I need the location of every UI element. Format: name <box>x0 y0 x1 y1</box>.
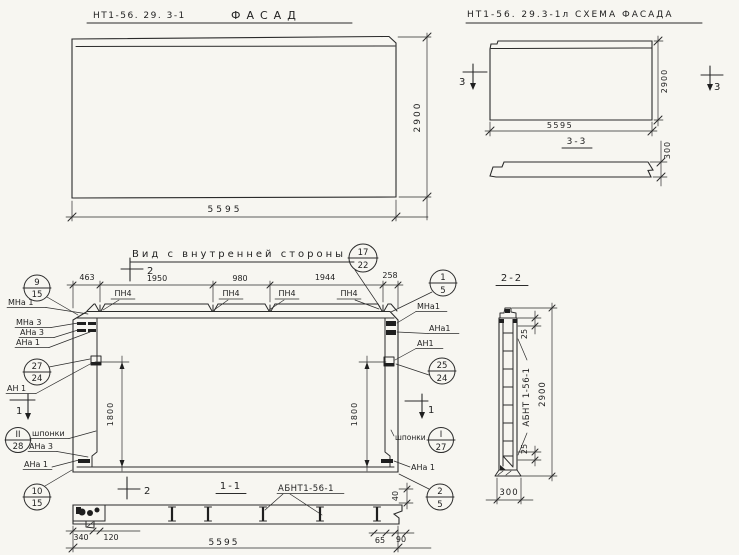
label-ana3-left-bottom: АНа 3 <box>28 442 88 457</box>
embedded-plate-right-bottom <box>381 459 393 463</box>
label-mna1-left: МНа 1 <box>7 298 88 314</box>
section-2-2-dim-25-top: 25 <box>518 311 541 339</box>
facade-code: НТ1-56. 29. 3-1 <box>93 11 186 21</box>
callout-right-bottom-den: 5 <box>437 500 442 510</box>
section-2-2: 2-2 <box>486 273 557 504</box>
callout-right-top-num: 1 <box>440 273 445 283</box>
dim-1944: 1944 <box>315 273 335 282</box>
section-2-2-part-label: АБНТ 1-56-1 <box>518 339 532 455</box>
dim-2900-section-text: 2900 <box>538 381 548 407</box>
label-an1-right-text: АН1 <box>417 339 434 348</box>
label-an1-right: АН1 <box>395 339 443 360</box>
callout-right-top-den: 5 <box>440 286 445 296</box>
part-label-abnt: АБНТ1-56-1 <box>265 484 344 515</box>
facade-title: НТ1-56. 29. 3-1 ФАСАД <box>87 9 352 23</box>
section-2-2-dim-25-bottom: 25 <box>518 444 541 466</box>
key-plate-left <box>91 356 101 365</box>
schema-section-title-text: 3-3 <box>567 137 588 147</box>
section-1-1: 2 1-1 АБНТ1-56-1 <box>66 477 431 552</box>
schema-section-profile <box>490 162 653 177</box>
label-ana1-left-bottom-text: АНа 1 <box>24 460 48 469</box>
label-ana3-left-bottom-text: АНа 3 <box>29 442 53 451</box>
section-1-1-title-text: 1-1 <box>220 481 242 492</box>
facade-panel-outline <box>72 37 396 199</box>
section-1-1-dims-left: 340 120 <box>66 528 140 542</box>
anchor-end-detail <box>76 507 100 528</box>
dim-5595-bottom-text: 5595 <box>209 538 240 548</box>
cut-mark-2-bottom-text: 2 <box>144 486 150 497</box>
inner-view-title-text: Вид с внутренней стороны <box>132 249 346 260</box>
callout-left-bottom: 10 15 <box>23 470 72 510</box>
label-mna1-right-text: МНа1 <box>417 302 440 311</box>
ladder-rungs <box>503 333 513 467</box>
facade-dim-height-text: 2900 <box>413 102 423 133</box>
dim-25-top-text: 25 <box>520 329 529 339</box>
inner-dim-right-1800: 1800 <box>350 356 386 471</box>
pn4-label-1: ПН4 <box>114 289 131 298</box>
cut-mark-1-right: 1 <box>405 394 434 419</box>
schema-cut-left-text: 3 <box>459 77 465 88</box>
schema-dim-height-text: 2900 <box>660 69 669 93</box>
label-mna1-left-text: МНа 1 <box>8 298 33 307</box>
pn4-label-2: ПН4 <box>222 289 239 298</box>
schema-cut-mark-right: 3 <box>701 66 723 93</box>
facade-view: НТ1-56. 29. 3-1 ФАСАД 5595 2900 <box>66 9 431 221</box>
callout-right-mid: 25 24 <box>396 358 456 384</box>
callout-right-bottom-num: 2 <box>437 487 442 497</box>
callout-left-bottom-num: 10 <box>32 487 43 497</box>
rib-symbols <box>169 507 381 521</box>
anchor-notch-4 <box>378 304 388 311</box>
callout-right-keys-num: I <box>440 430 443 440</box>
pn4-labels: ПН4 ПН4 ПН4 ПН4 <box>103 289 379 310</box>
anchor-notch-3 <box>265 304 275 311</box>
schema-view: НТ1-56. 29.3-1л СХЕМА ФАСАДА 5595 2900 <box>459 10 723 186</box>
label-keys-left-text: шпонки <box>32 429 65 438</box>
callout-left-keys: II 28 <box>5 428 31 453</box>
schema-dim-thickness-text: 300 <box>663 141 672 159</box>
inner-dim-left-text: 1800 <box>106 402 115 426</box>
drawing-sheet: НТ1-56. 29. 3-1 ФАСАД 5595 2900 НТ1 <box>0 0 739 555</box>
embedded-plates-left-top <box>77 322 96 332</box>
facade-dim-height: 2900 <box>398 33 431 220</box>
label-mna3-left-text: МНа 3 <box>16 318 41 327</box>
facade-title-text: ФАСАД <box>231 9 302 22</box>
schema-cut-mark-left: 3 <box>459 64 487 90</box>
dim-463: 463 <box>79 273 94 282</box>
callout-top-right-den: 22 <box>358 261 369 271</box>
embedded-plates-right-top <box>386 321 396 335</box>
label-an1-left-text: АН 1 <box>7 384 26 393</box>
label-keys-left: шпонки <box>30 429 96 439</box>
label-mna3-left: МНа 3 <box>15 318 78 328</box>
section-2-2-title-text: 2-2 <box>501 273 523 284</box>
section-2-2-body <box>495 308 521 476</box>
label-ana1-right-bottom: АНа 1 <box>394 461 435 472</box>
callout-left-keys-den: 28 <box>13 442 24 452</box>
facade-dim-width-text: 5595 <box>208 205 243 215</box>
dim-90-text: 90 <box>396 535 406 544</box>
label-ana1-left-bottom: АНа 1 <box>23 460 79 470</box>
anchor-notch-2 <box>208 304 218 311</box>
schema-dim-width-text: 5595 <box>547 121 573 130</box>
label-ana3-left-text: АНа 3 <box>20 328 44 337</box>
pn4-label-4: ПН4 <box>340 289 357 298</box>
label-ana1-right-text: АНа1 <box>429 324 450 333</box>
section-2-2-dim-height: 2900 <box>512 303 557 481</box>
callout-left-keys-num: II <box>15 430 20 440</box>
inner-dim-left-1800: 1800 <box>95 356 129 471</box>
schema-section-title: 3-3 <box>562 137 592 148</box>
cut-mark-1-left-text: 1 <box>16 406 22 417</box>
inner-view: Вид с внутренней стороны 17 22 2 <box>5 244 459 510</box>
callout-right-keys: I 27 <box>427 428 455 454</box>
inner-dim-right-text: 1800 <box>350 402 359 426</box>
dim-340-text: 340 <box>73 533 88 542</box>
callout-right-mid-den: 24 <box>437 374 448 384</box>
section-2-2-dim-width: 300 <box>486 478 533 504</box>
schema-panel-outline <box>490 41 652 120</box>
dim-300-text: 300 <box>499 488 518 498</box>
section-1-1-dims-right: 65 90 <box>369 530 414 545</box>
callout-left-bottom-den: 15 <box>32 499 43 509</box>
schema-dim-thickness: 300 <box>650 141 672 186</box>
dim-25-bottom-text: 25 <box>520 444 529 454</box>
schema-cut-right-text: 3 <box>714 82 720 93</box>
callout-right-keys-den: 27 <box>436 443 447 453</box>
label-keys-right-text: шпонки <box>395 433 426 442</box>
callout-left-top-num: 9 <box>34 278 39 288</box>
callout-left-mid: 27 24 <box>23 359 90 385</box>
inner-view-title: Вид с внутренней стороны <box>130 249 354 262</box>
schema-title-text: НТ1-56. 29.3-1л СХЕМА ФАСАДА <box>467 10 674 20</box>
facade-dim-width: 5595 <box>66 200 428 221</box>
label-keys-right: шпонки <box>391 430 426 442</box>
dim-120-text: 120 <box>103 533 118 542</box>
dim-1950: 1950 <box>147 274 167 283</box>
callout-top-right-num: 17 <box>358 248 369 258</box>
drawing-svg: НТ1-56. 29. 3-1 ФАСАД 5595 2900 НТ1 <box>0 0 739 555</box>
label-ana3-left: АНа 3 <box>19 328 78 338</box>
dim-980: 980 <box>232 274 247 283</box>
callout-left-mid-num: 27 <box>32 362 43 372</box>
part-label-abnt-text: АБНТ1-56-1 <box>278 484 334 494</box>
section-2-2-title: 2-2 <box>496 273 528 286</box>
pn4-label-3: ПН4 <box>278 289 295 298</box>
schema-dim-height: 2900 <box>654 36 669 126</box>
embedded-plate-left-bottom <box>78 459 90 463</box>
schema-title: НТ1-56. 29.3-1л СХЕМА ФАСАДА <box>466 10 702 23</box>
dim-40-text: 40 <box>391 491 400 501</box>
label-ana1-right-bottom-text: АНа 1 <box>411 463 435 472</box>
dim-258: 258 <box>382 271 397 280</box>
dim-65-text: 65 <box>375 536 385 545</box>
section-2-2-part-label-text: АБНТ 1-56-1 <box>522 367 532 426</box>
callout-left-top: 9 15 <box>23 275 78 315</box>
cut-mark-2-bottom: 2 <box>118 477 150 499</box>
callout-left-mid-den: 24 <box>32 374 43 384</box>
label-ana1-right: АНа1 <box>397 324 459 334</box>
callout-right-mid-num: 25 <box>437 361 448 371</box>
label-ana1-left-text: АНа 1 <box>16 338 40 347</box>
section-1-1-title: 1-1 <box>216 481 246 494</box>
section-1-1-body <box>73 505 402 528</box>
cut-mark-1-left: 1 <box>10 394 35 420</box>
schema-dim-width: 5595 <box>485 121 657 136</box>
cut-mark-1-right-text: 1 <box>428 405 434 416</box>
